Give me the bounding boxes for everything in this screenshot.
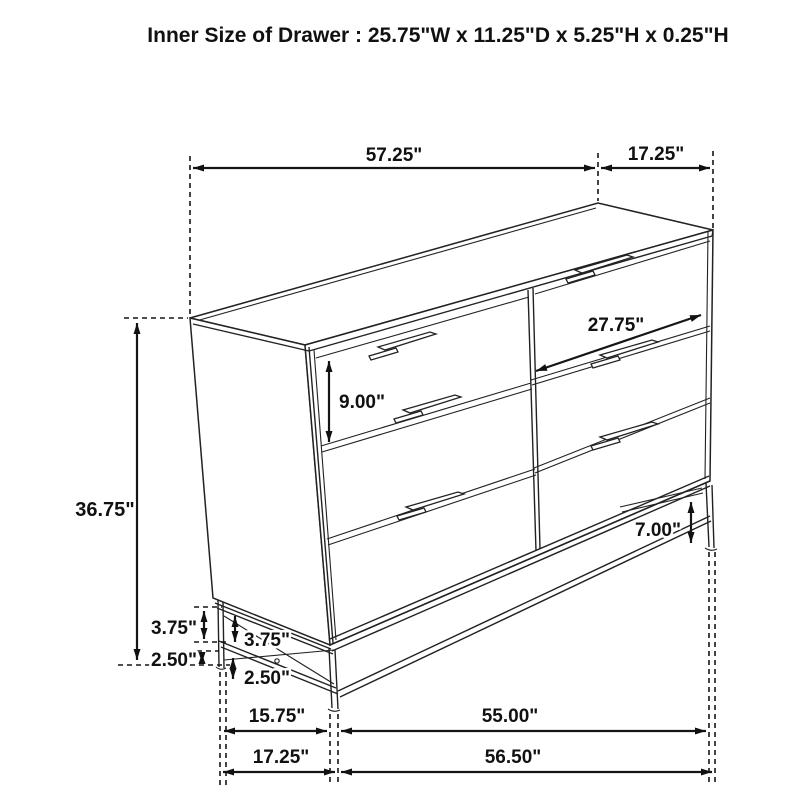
dimension-label-top-depth: 17.25" xyxy=(628,144,685,165)
dresser-dimension-diagram: Inner Size of Drawer : 25.75"W x 11.25"D… xyxy=(0,0,800,800)
dimension-label-overall-height: 36.75" xyxy=(75,499,135,521)
title-text: Inner Size of Drawer : 25.75"W x 11.25"D… xyxy=(147,24,728,47)
dimension-base-lower-gap-outer: 2.50" xyxy=(151,650,202,671)
dimension-label-base-width-outer: 56.50" xyxy=(485,747,542,768)
dimension-label-base-leg-height: 7.00" xyxy=(635,520,681,541)
dimension-label-top-width: 57.25" xyxy=(366,145,423,166)
dimension-label-base-width-inner: 55.00" xyxy=(482,706,539,727)
dimension-label-drawer-height: 9.00" xyxy=(339,392,385,413)
dimension-label-base-depth-outer: 17.25" xyxy=(253,747,310,768)
dimension-label-base-depth-inner: 15.75" xyxy=(249,706,306,727)
dimension-label-base-gap-inner: 3.75" xyxy=(244,630,290,651)
dimension-label-base-lower-gap-outer: 2.50" xyxy=(151,650,197,671)
dimension-label-drawer-width: 27.75" xyxy=(588,315,645,336)
diagram-title: Inner Size of Drawer : 25.75"W x 11.25"D… xyxy=(147,24,728,47)
dimension-label-base-gap-outer: 3.75" xyxy=(151,618,197,639)
dimension-label-base-lower-gap-inner: 2.50" xyxy=(244,668,290,689)
